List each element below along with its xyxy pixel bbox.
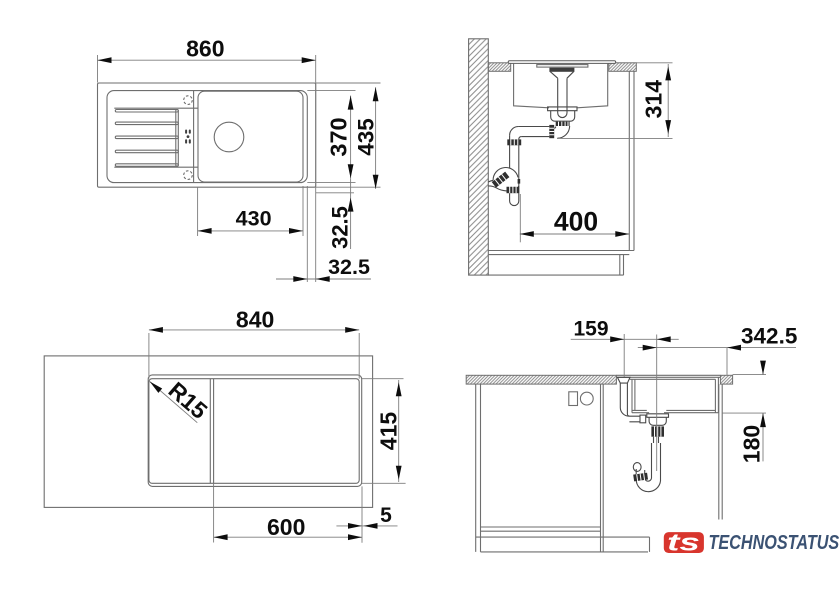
svg-text:840: 840 xyxy=(236,307,274,333)
svg-text:32.5: 32.5 xyxy=(328,206,353,249)
svg-text:400: 400 xyxy=(554,207,598,237)
svg-text:435: 435 xyxy=(354,118,379,156)
svg-text:ts: ts xyxy=(667,528,700,555)
svg-text:415: 415 xyxy=(376,412,402,451)
svg-text:342.5: 342.5 xyxy=(741,324,797,349)
svg-text:159: 159 xyxy=(573,318,608,341)
svg-text:180: 180 xyxy=(738,425,764,463)
svg-text:5: 5 xyxy=(380,504,392,527)
svg-text:32.5: 32.5 xyxy=(328,255,370,279)
svg-text:860: 860 xyxy=(186,36,224,62)
svg-text:600: 600 xyxy=(267,514,305,540)
svg-text:314: 314 xyxy=(640,80,666,119)
svg-text:430: 430 xyxy=(236,207,272,231)
svg-text:370: 370 xyxy=(326,117,352,156)
svg-text:TECHNOSTATUS: TECHNOSTATUS xyxy=(709,531,840,553)
